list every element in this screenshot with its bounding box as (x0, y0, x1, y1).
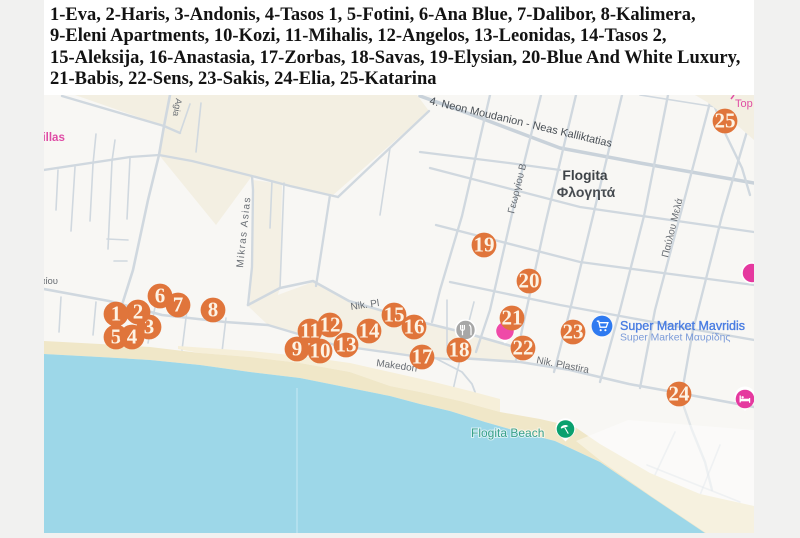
svg-text:19: 19 (474, 233, 495, 257)
svg-text:1: 1 (111, 302, 122, 326)
svg-text:18: 18 (449, 338, 470, 362)
svg-text:16: 16 (404, 315, 425, 339)
svg-text:4: 4 (127, 325, 138, 349)
svg-text:6: 6 (155, 284, 166, 308)
svg-text:Flogita Beach: Flogita Beach (471, 426, 544, 440)
svg-text:21: 21 (502, 306, 523, 330)
svg-text:Super Market Μαυρίδης: Super Market Μαυρίδης (620, 332, 730, 344)
svg-text:20: 20 (519, 269, 540, 293)
svg-text:12: 12 (320, 313, 341, 337)
svg-text:2: 2 (133, 300, 144, 324)
svg-text:24: 24 (669, 382, 691, 406)
svg-text:Villas: Villas (44, 132, 65, 144)
svg-text:17: 17 (412, 345, 433, 369)
svg-text:Super Market Mavridis: Super Market Mavridis (620, 319, 745, 333)
svg-text:ιγαίου: ιγαίου (44, 276, 58, 287)
svg-text:8: 8 (208, 298, 219, 322)
svg-text:14: 14 (359, 319, 381, 343)
svg-text:22: 22 (513, 336, 534, 360)
svg-text:10: 10 (310, 339, 331, 363)
svg-text:Φλογητά: Φλογητά (557, 184, 616, 200)
svg-text:15: 15 (384, 303, 405, 327)
svg-text:7: 7 (173, 293, 184, 317)
svg-text:Flogita: Flogita (562, 168, 608, 183)
svg-text:9: 9 (292, 337, 303, 361)
svg-text:23: 23 (563, 320, 584, 344)
svg-text:Top: Top (735, 98, 753, 110)
svg-text:25: 25 (715, 109, 736, 133)
